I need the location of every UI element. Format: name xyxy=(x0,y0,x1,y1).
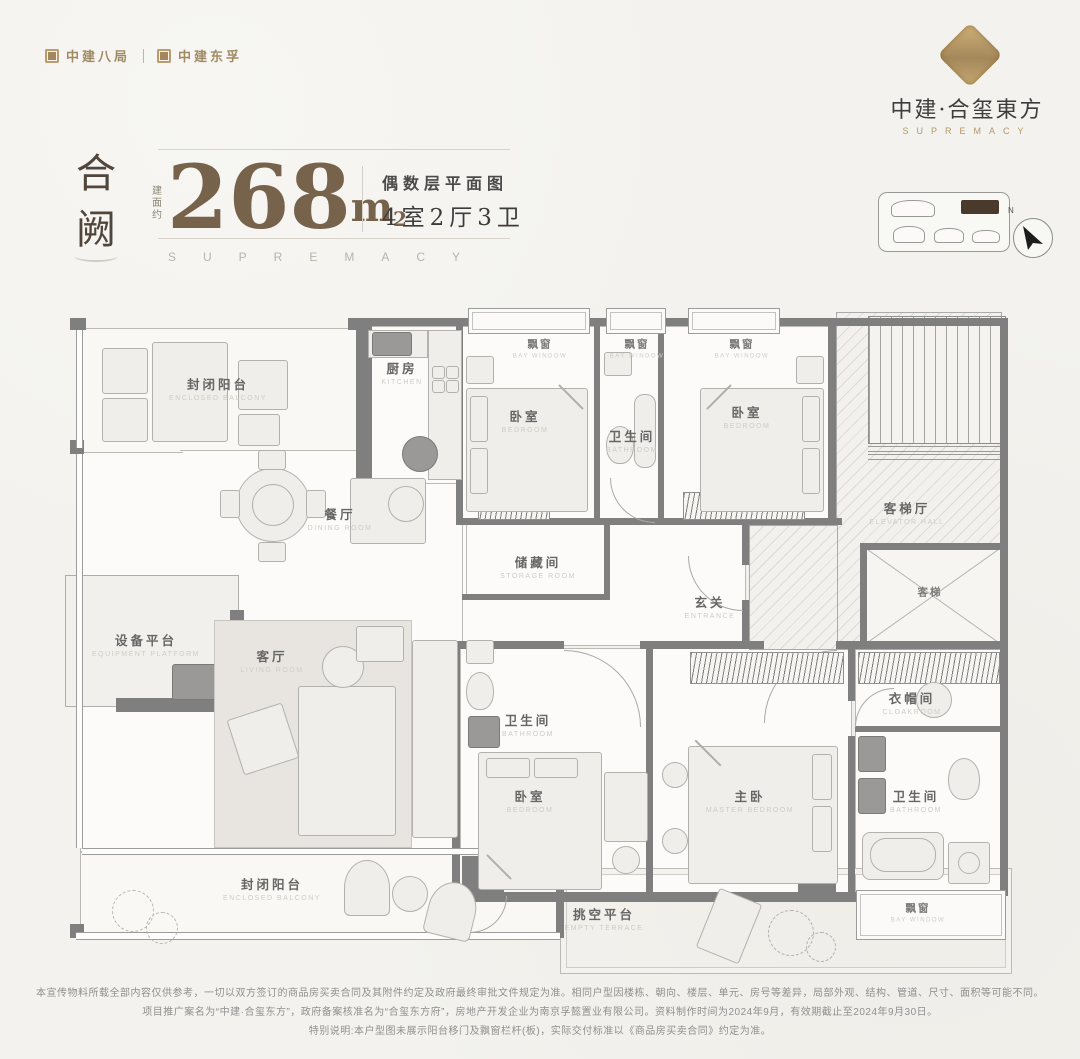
bay-window xyxy=(688,308,780,334)
pillow xyxy=(802,396,820,442)
wall xyxy=(640,641,764,649)
key-plan-unit xyxy=(893,226,925,243)
toilet xyxy=(466,672,494,710)
stove-burner xyxy=(432,380,445,393)
label-bathroom-mid: 卫生间BATHROOM xyxy=(502,710,554,738)
pillow xyxy=(470,396,488,442)
wardrobe xyxy=(858,652,1000,684)
key-plan-unit xyxy=(891,200,935,217)
title-vertical-divider xyxy=(362,166,363,232)
wall xyxy=(604,518,610,600)
area-figure: 268 m 2 xyxy=(167,158,407,237)
label-bathroom-right: 卫生间BATHROOM xyxy=(890,786,942,814)
balcony-furniture xyxy=(238,414,280,446)
vanity-sink xyxy=(858,736,886,772)
label-living: 客厅LIVING ROOM xyxy=(240,646,303,674)
bathtub-basin xyxy=(870,838,936,872)
label-bay-window-1: 飘窗BAY WINDOW xyxy=(513,337,567,360)
window xyxy=(76,330,83,448)
wardrobe xyxy=(690,652,844,684)
plant xyxy=(806,932,836,962)
common-area-hatch xyxy=(749,525,838,650)
wall xyxy=(848,736,855,896)
kitchen-sink xyxy=(402,436,438,472)
label-bay-window-3: 飘窗BAY WINDOW xyxy=(715,337,769,360)
wall xyxy=(860,543,1002,550)
balcony-furniture xyxy=(102,398,148,442)
kitchen-appliance xyxy=(372,332,412,356)
disclaimer-line-1: 本宣传物料所载全部内容仅供参考，一切以双方签订的商品房买卖合同及其附件约定及政府… xyxy=(0,984,1080,999)
label-dining: 餐厅DINING ROOM xyxy=(308,504,373,532)
area-prefix: 建面约 xyxy=(152,186,164,222)
brand-name: 中建·合玺東方 xyxy=(852,92,1080,124)
label-storage: 储藏间STORAGE ROOM xyxy=(500,552,576,580)
label-elevator-hall: 客梯厅ELEVATOR HALL xyxy=(869,498,944,526)
pillow xyxy=(470,448,488,494)
pillow xyxy=(534,758,578,778)
label-bay-window-2: 飘窗BAY WINDOW xyxy=(610,337,664,360)
disclaimer-line-2: 项目推广案名为“中建·合玺东方”，政府备案核准名为“合玺东方府”，房地产开发企业… xyxy=(0,1003,1080,1018)
sofa xyxy=(298,686,396,836)
title-rule-bottom xyxy=(158,238,510,239)
bay-window xyxy=(606,308,666,334)
stair-landing-line xyxy=(868,454,1004,460)
wall xyxy=(70,318,86,330)
wall xyxy=(348,318,372,330)
developer-logo-text-1: 中建八局 xyxy=(66,46,130,65)
label-bay-window-bottom: 飘窗BAY WINDOW xyxy=(891,901,945,924)
bay-window xyxy=(468,308,590,334)
tv-cabinet xyxy=(412,640,458,838)
wall xyxy=(828,326,836,522)
label-entrance: 玄关ENTRANCE xyxy=(685,592,736,620)
stool xyxy=(612,846,640,874)
plant xyxy=(146,912,178,944)
side-table xyxy=(356,626,404,662)
vanity-sink xyxy=(858,778,886,814)
label-kitchen: 厨房KITCHEN xyxy=(381,358,422,386)
wall xyxy=(742,525,749,565)
logo-divider xyxy=(143,49,144,63)
area-value: 268 xyxy=(167,158,351,237)
pillow xyxy=(812,754,832,800)
brand-diamond-logo xyxy=(947,32,993,78)
stair-landing-line xyxy=(868,446,1004,452)
wall xyxy=(848,649,855,701)
nightstand xyxy=(466,356,494,384)
dining-chair xyxy=(258,450,286,470)
sink xyxy=(466,640,494,664)
seal-icon xyxy=(45,49,59,63)
dining-chair xyxy=(220,490,240,518)
dining-chair xyxy=(258,542,286,562)
poster-canvas: 中建八局 中建东孚 中建·合玺東方 SUPREMACY 合阙 建面约 268 m… xyxy=(0,0,1080,1059)
nightstand xyxy=(604,772,648,842)
unit-name: 合阙 xyxy=(74,146,118,258)
floor-type-label: 偶数层平面图 xyxy=(382,170,508,194)
label-master-bedroom: 主卧MASTER BEDROOM xyxy=(706,786,794,814)
balcony-arch-decor xyxy=(344,860,390,916)
label-enclosed-balcony-top: 封闭阳台ENCLOSED BALCONY xyxy=(169,374,267,402)
wall xyxy=(860,543,867,645)
pillow xyxy=(812,806,832,852)
key-plan-unit xyxy=(972,230,1000,243)
wall xyxy=(1000,318,1008,896)
wall xyxy=(452,892,856,902)
label-bathroom-top: 卫生间BATHROOM xyxy=(606,426,658,454)
key-plan-unit xyxy=(934,228,964,243)
pillow xyxy=(486,758,530,778)
label-bedroom-top-left: 卧室BEDROOM xyxy=(502,406,549,434)
toilet xyxy=(948,758,980,800)
dining-table-decor xyxy=(252,484,294,526)
island-sink xyxy=(388,486,424,522)
label-bedroom-top-right: 卧室BEDROOM xyxy=(724,402,771,430)
label-equipment-platform: 设备平台EQUIPMENT PLATFORM xyxy=(92,630,200,658)
label-terrace: 挑空平台EMPTY TERRACE xyxy=(565,904,644,932)
label-enclosed-balcony-bottom: 封闭阳台ENCLOSED BALCONY xyxy=(223,874,321,902)
cloud-ornament-icon xyxy=(74,250,118,262)
supremacy-watermark: SUPREMACY xyxy=(168,250,487,264)
seal-icon xyxy=(157,49,171,63)
nightstand xyxy=(796,356,824,384)
label-cloakroom: 衣帽间CLOAKROOM xyxy=(882,688,941,716)
key-plan xyxy=(878,192,1010,252)
stairs xyxy=(868,316,1006,444)
wall xyxy=(362,318,1008,326)
label-bedroom-bottom: 卧室BEDROOM xyxy=(507,786,554,814)
developer-logo-text-2: 中建东孚 xyxy=(178,46,242,65)
north-arrow-icon xyxy=(1013,218,1053,258)
shower xyxy=(468,716,500,748)
balcony-furniture xyxy=(102,348,148,394)
wall xyxy=(594,326,600,522)
wall xyxy=(836,641,1008,649)
label-elevator: 客梯 xyxy=(918,585,943,600)
layout-label: 4室2厅3卫 xyxy=(382,198,525,232)
balcony-decor xyxy=(392,876,428,912)
stove-burner xyxy=(432,366,445,379)
window xyxy=(76,454,83,848)
key-plan-highlighted-unit xyxy=(961,200,999,214)
washer-drum xyxy=(958,852,980,874)
stove-burner xyxy=(446,366,459,379)
developer-logos: 中建八局 中建东孚 xyxy=(45,46,242,65)
disclaimer-line-3: 特别说明:本户型图未展示阳台移门及飘窗栏杆(板)，实际交付标准以《商品房买卖合同… xyxy=(0,1022,1080,1037)
wall xyxy=(462,594,610,600)
brand-subtitle: SUPREMACY xyxy=(852,126,1080,136)
stool xyxy=(662,762,688,788)
stool xyxy=(662,828,688,854)
pillow xyxy=(802,448,820,494)
stove-burner xyxy=(446,380,459,393)
north-label: N xyxy=(1008,206,1014,215)
